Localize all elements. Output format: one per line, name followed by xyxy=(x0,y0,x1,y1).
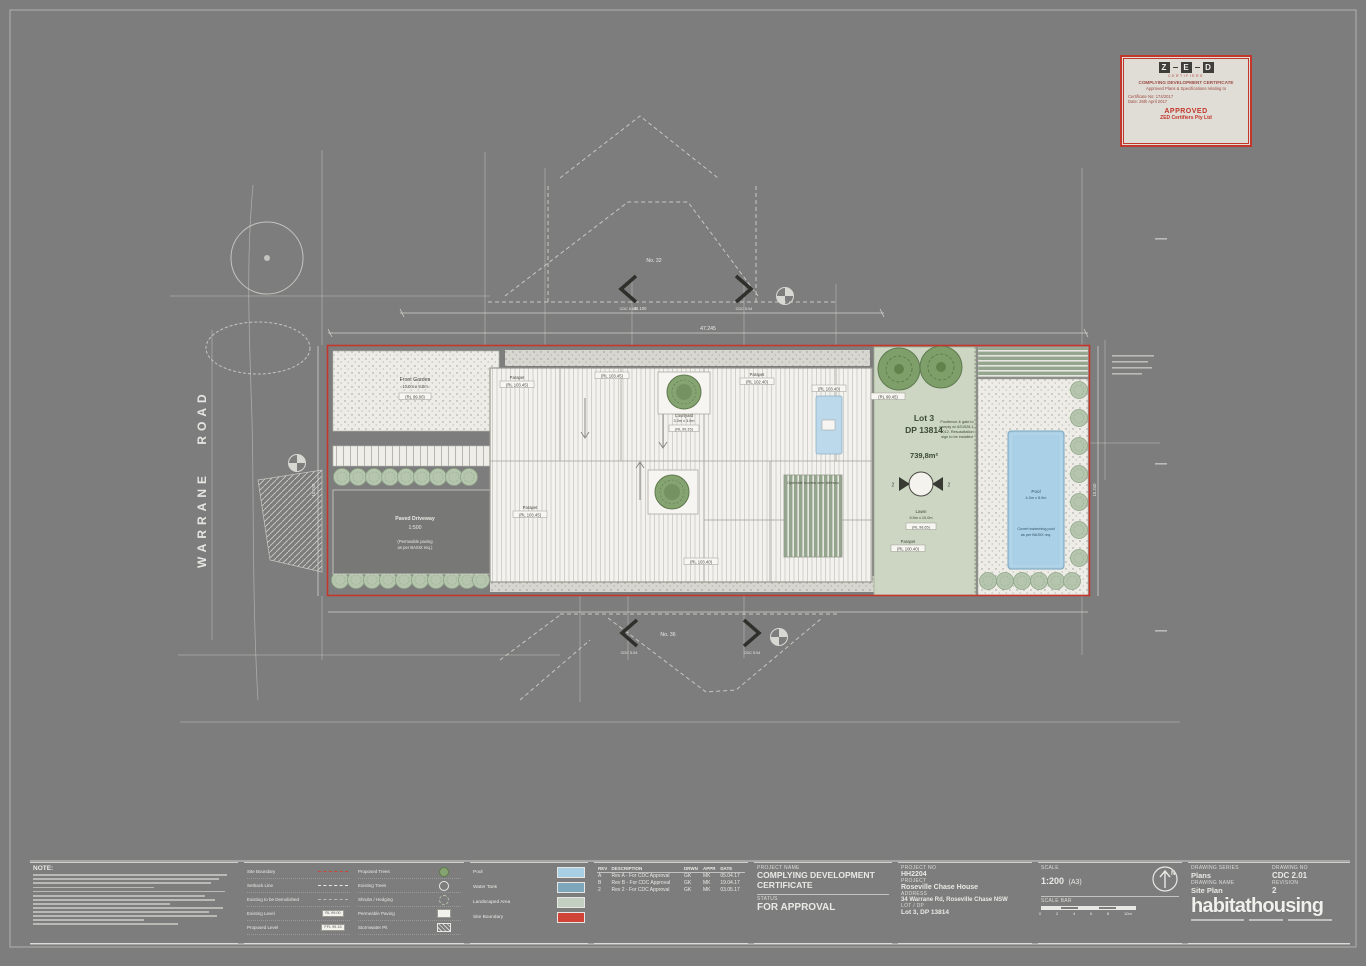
courtyard-rl: (RL 99.15) xyxy=(669,425,699,432)
path-boardwalk xyxy=(333,446,505,466)
pergola xyxy=(978,347,1088,377)
contact-info-simulated xyxy=(1191,919,1347,921)
zed-logo-letter: D xyxy=(1203,62,1214,73)
legend-col-left: Site Boundary Setback Line Existing to b… xyxy=(247,865,350,935)
driveway: Paved Driveway 1:500 (Permeable paving a… xyxy=(333,490,497,574)
rear-tree xyxy=(878,348,920,390)
color-legend-item: Site Boundary xyxy=(473,910,585,925)
address-label: ADDRESS xyxy=(901,891,1029,897)
courtyard-label: Courtyard xyxy=(675,413,694,418)
project-label: PROJECT xyxy=(901,878,1029,884)
shrub-row-top xyxy=(334,469,478,486)
svg-text:sign to be installed: sign to be installed xyxy=(941,435,972,439)
lot-label: LOT / DP xyxy=(901,903,1029,909)
revision-value: 2 xyxy=(1272,886,1347,895)
drawing-name-label: DRAWING NAME xyxy=(1191,880,1266,886)
stamp-approved: APPROVED xyxy=(1128,108,1244,115)
zed-logo-subtitle: CERTIFIERS xyxy=(1128,74,1244,78)
pool-color-swatch xyxy=(557,867,585,878)
svg-text:(RL 98.65): (RL 98.65) xyxy=(912,525,931,529)
pool-note: as per BASIX req. xyxy=(1021,533,1051,537)
text-line-bar xyxy=(33,899,215,901)
poolfence-note: Poolfence & gate to comply w/ AS1926.1- … xyxy=(939,420,975,439)
habitathousing-logo: habitathousing xyxy=(1191,895,1347,917)
existing-tree-symbol xyxy=(439,881,449,891)
svg-text:Poolfence & gate to: Poolfence & gate to xyxy=(940,420,973,424)
pool-note: Covert swimming pool xyxy=(1017,527,1055,531)
legend-item: Setback Line xyxy=(247,879,350,893)
setback-line-symbol xyxy=(318,885,348,886)
existing-shrub-outline xyxy=(206,322,310,374)
legend-item: Site Boundary xyxy=(247,865,350,879)
project-name-label: PROJECT NAME xyxy=(757,865,889,871)
legend-item: Shrubs / Hedging xyxy=(358,893,461,907)
stamp-date: Date: 26th April 2017 xyxy=(1128,99,1244,105)
color-legend-panel: Pool Water Tank Landscaped Area Site Bou… xyxy=(470,862,588,944)
project-name: COMPLYING DEVELOPMENT CERTIFICATE xyxy=(757,871,889,890)
zed-logo-letter: Z xyxy=(1159,62,1170,73)
lawn-rl: (RL 98.65) xyxy=(906,523,936,530)
legend-col-right: Proposed Trees Existing Trees Shrubs / H… xyxy=(358,865,461,935)
dim-side-left: 15.240 xyxy=(311,483,316,496)
legend-item: Existing LevelRL 99.00 xyxy=(247,907,350,921)
svg-text:(RL 99.00): (RL 99.00) xyxy=(405,394,425,399)
revision-label: REVISION xyxy=(1272,880,1347,886)
zed-logo-dash xyxy=(1195,67,1200,69)
dim-top: 47.245 xyxy=(700,326,716,332)
zed-logo-dash xyxy=(1173,67,1178,69)
lot-dp: DP 13814 xyxy=(905,425,943,435)
rl-tag-symbol: RL 99.00 xyxy=(322,910,343,918)
pool-label: Pool xyxy=(1031,489,1040,494)
color-legend-item: Landscaped Area xyxy=(473,895,585,910)
legend-panel: Site Boundary Setback Line Existing to b… xyxy=(244,862,464,944)
text-line-bar xyxy=(33,882,211,884)
lawn-label: Lawn xyxy=(916,509,927,514)
front-garden-size: 10.0m x 8.0m xyxy=(402,384,428,389)
text-line-bar xyxy=(33,887,154,889)
legend-item: Existing to be Demolished xyxy=(247,893,350,907)
demolish-line-symbol xyxy=(318,899,348,900)
text-line-bar xyxy=(1191,919,1244,921)
sheet-size: (A3) xyxy=(1068,879,1081,886)
section-marker-label: CDC 5.04 xyxy=(744,651,761,655)
project-info-panel: PROJECT NO HH2204 PROJECT Roseville Chas… xyxy=(898,862,1032,944)
skylight xyxy=(816,396,842,454)
louvre-roof: Operable louvres over alfresco xyxy=(784,475,842,557)
svg-text:(RL 103.45): (RL 103.45) xyxy=(506,382,529,387)
project-no-label: PROJECT NO xyxy=(901,865,1029,871)
driveway-label: Paved Driveway xyxy=(395,516,435,522)
scale-bar xyxy=(1041,906,1179,910)
legend-item: Proposed Trees xyxy=(358,865,461,879)
svg-text:(RL 100.40): (RL 100.40) xyxy=(897,546,920,551)
color-legend-item: Pool xyxy=(473,865,585,880)
legend-item: Permeable Paving xyxy=(358,907,461,921)
benchmark-icon xyxy=(771,629,788,646)
svg-text:Parapet: Parapet xyxy=(901,539,917,544)
dim-side-right: 15.240 xyxy=(1092,483,1097,496)
stamp-title: COMPLYING DEVELOPMENT CERTIFICATE xyxy=(1128,80,1244,86)
front-garden-rl: (RL 99.00) xyxy=(399,393,431,400)
text-line-bar xyxy=(1249,919,1283,921)
drawing-series-label: DRAWING SERIES xyxy=(1191,865,1266,871)
drawing-sheet: WARRANE ROAD No. 32 No. 36 CDC 5.04 CDC … xyxy=(0,0,1366,966)
drawing-series: Plans xyxy=(1191,871,1266,880)
svg-text:2012. Resuscitation: 2012. Resuscitation xyxy=(940,430,973,434)
project-title: Roseville Chase House xyxy=(901,884,1029,891)
svg-text:Parapet: Parapet xyxy=(750,372,766,377)
front-garden-label: Front Garden xyxy=(400,377,431,383)
svg-text:(RL 102.40): (RL 102.40) xyxy=(746,379,769,384)
pool-size: 4.0m x 8.0m xyxy=(1026,496,1047,500)
front-garden: Front Garden 10.0m x 8.0m (RL 99.00) xyxy=(333,351,499,431)
drawing-no: CDC 2.01 xyxy=(1272,871,1347,880)
lot-area: 739,8m² xyxy=(910,451,938,460)
legend-item: Existing Trees xyxy=(358,879,461,893)
certification-stamp: Z E D CERTIFIERS COMPLYING DEVELOPMENT C… xyxy=(1120,55,1252,147)
revision-table-panel: REV DESCRIPTION DRWN APPR DATE ARev A - … xyxy=(594,862,748,944)
svg-text:Parapet: Parapet xyxy=(523,505,539,510)
svg-text:(RL 103.40): (RL 103.40) xyxy=(690,559,713,564)
status-label: STATUS xyxy=(757,896,889,902)
neighbour-house-top: No. 32 xyxy=(488,116,838,302)
stamp-subtitle: Approved Plans & Specifications relating… xyxy=(1128,86,1244,91)
neighbour-house-bottom: No. 36 xyxy=(500,614,838,700)
title-block: NOTE: Site Boundary Setback Line Existin… xyxy=(30,862,1350,944)
revision-row: 2Rev 2 - For CDC ApprovalGKMK03.05.17 xyxy=(597,887,745,894)
lawn-area: Lot 3 DP 13814 739,8m² 2 2 Lawn 5.5m x 1… xyxy=(874,346,976,595)
revision-row: ARev A - For CDC ApprovalGKMK05.04.17 xyxy=(597,873,745,881)
courtyard-tree xyxy=(667,375,701,409)
svg-text:comply w/ AS1926.1-: comply w/ AS1926.1- xyxy=(939,425,975,429)
north-arrow-icon: N xyxy=(1151,865,1179,893)
text-line-bar xyxy=(33,895,205,897)
svg-text:Parapet: Parapet xyxy=(510,375,526,380)
text-line-bar xyxy=(33,923,178,925)
project-panel: PROJECT NAME COMPLYING DEVELOPMENT CERTI… xyxy=(754,862,892,944)
text-line-bar xyxy=(1288,919,1332,921)
courtyard-tree xyxy=(655,475,689,509)
dim-top2: 38.100 xyxy=(634,306,647,311)
benchmark-icon xyxy=(289,455,306,472)
courtyard-size: 3.0m x 3.0m xyxy=(674,419,695,423)
zed-logo-letter: E xyxy=(1181,62,1192,73)
driveway-note: as per BASIX req.) xyxy=(398,545,434,550)
scale-label: SCALE xyxy=(1041,865,1082,871)
scale-value: 1:200 xyxy=(1041,876,1064,886)
scale-panel: SCALE 1:200 (A3) N SCALE BAR 0 2 4 6 8 1… xyxy=(1038,862,1182,944)
text-line-bar xyxy=(33,903,170,905)
lawn-size: 5.5m x 10.0m xyxy=(909,516,932,520)
drawing-name: Site Plan xyxy=(1191,886,1266,895)
notes-panel: NOTE: xyxy=(30,862,238,944)
louvre-note: Operable louvres over alfresco xyxy=(787,481,839,485)
zed-logo: Z E D xyxy=(1128,62,1244,73)
text-line-bar xyxy=(33,919,144,921)
pool-terrace: Pool 4.0m x 8.0m Covert swimming pool as… xyxy=(978,379,1088,595)
ffl-tag-symbol: FFL 99.15 xyxy=(321,924,344,932)
color-legend-item: Water Tank xyxy=(473,880,585,895)
driveway-grade: 1:500 xyxy=(409,525,422,531)
legend-item: Proposed LevelFFL 99.15 xyxy=(247,921,350,935)
text-line-bar xyxy=(33,911,209,913)
section-marker-label: CDC 5.04 xyxy=(621,651,638,655)
text-line-bar xyxy=(33,874,227,876)
notes-title: NOTE: xyxy=(33,865,235,872)
text-line-bar xyxy=(33,891,225,893)
svg-text:(RL 103.40): (RL 103.40) xyxy=(818,386,841,391)
svg-text:(RL 103.45): (RL 103.45) xyxy=(519,512,542,517)
svg-text:2: 2 xyxy=(948,483,951,489)
neighbour-top-label: No. 32 xyxy=(646,258,661,264)
text-line-bar xyxy=(33,878,219,880)
neighbour-bottom-label: No. 36 xyxy=(660,632,675,638)
boundary-line-symbol xyxy=(318,871,348,872)
svg-text:(RL 103.45): (RL 103.45) xyxy=(601,373,624,378)
svg-text:N: N xyxy=(1171,871,1175,877)
rear-tree xyxy=(920,346,962,388)
svg-text:(RL 99.15): (RL 99.15) xyxy=(675,427,694,431)
water-color-swatch xyxy=(557,882,585,893)
revision-header-row: REV DESCRIPTION DRWN APPR DATE xyxy=(597,865,745,873)
landscape-color-swatch xyxy=(557,897,585,908)
text-line-bar xyxy=(33,915,217,917)
stamp-company: ZED Certifiers Pty Ltd xyxy=(1128,115,1244,121)
status-value: FOR APPROVAL xyxy=(757,902,889,913)
paving-symbol xyxy=(437,909,451,918)
shrub-symbol xyxy=(439,895,449,905)
benchmark-icon xyxy=(777,288,794,305)
drawing-no-label: DRAWING NO xyxy=(1272,865,1347,871)
boundary-color-swatch xyxy=(557,912,585,923)
section-marker-label: CDC 5.04 xyxy=(736,307,753,311)
svg-text:(RL 99.45): (RL 99.45) xyxy=(878,394,898,399)
project-no: HH2204 xyxy=(901,871,1029,878)
lot-value: Lot 3, DP 13814 xyxy=(901,909,1029,916)
road-name-label: WARRANE ROAD xyxy=(195,389,209,568)
scale-bar-label: SCALE BAR xyxy=(1041,898,1179,904)
stormwater-symbol xyxy=(437,923,451,932)
notes-text-simulated xyxy=(33,874,235,925)
legend-item: Stormwater Pit xyxy=(358,921,461,935)
text-line-bar xyxy=(33,907,223,909)
revision-table: REV DESCRIPTION DRWN APPR DATE ARev A - … xyxy=(597,865,745,894)
pool xyxy=(1008,431,1064,569)
svg-text:2: 2 xyxy=(892,483,895,489)
proposed-tree-symbol xyxy=(439,867,449,877)
road-verge: WARRANE ROAD xyxy=(195,185,322,700)
revision-row: BRev B - For CDC ApprovalGKMK19.04.17 xyxy=(597,880,745,887)
lot-number: Lot 3 xyxy=(914,413,935,423)
drawing-panel: DRAWING SERIES Plans DRAWING NAME Site P… xyxy=(1188,862,1350,944)
scale-bar-ticks: 0 2 4 6 8 10m xyxy=(1041,911,1179,916)
driveway-note: (Permeable paving xyxy=(397,539,433,544)
